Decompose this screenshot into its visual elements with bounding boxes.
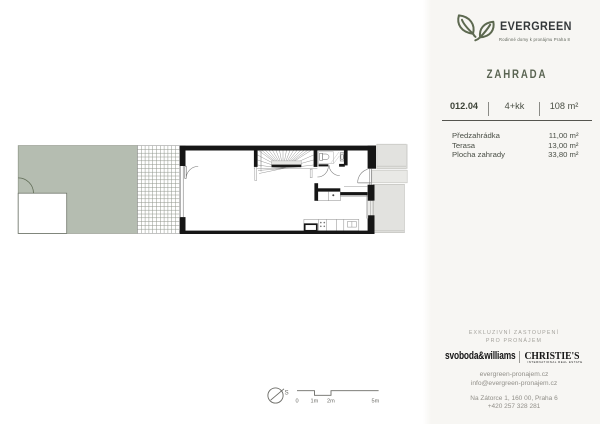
svg-text:0: 0 <box>296 398 299 404</box>
svg-text:5m: 5m <box>372 398 380 404</box>
svg-text:1m: 1m <box>311 398 319 404</box>
svg-text:2m: 2m <box>327 398 335 404</box>
svg-text:S: S <box>285 390 289 397</box>
